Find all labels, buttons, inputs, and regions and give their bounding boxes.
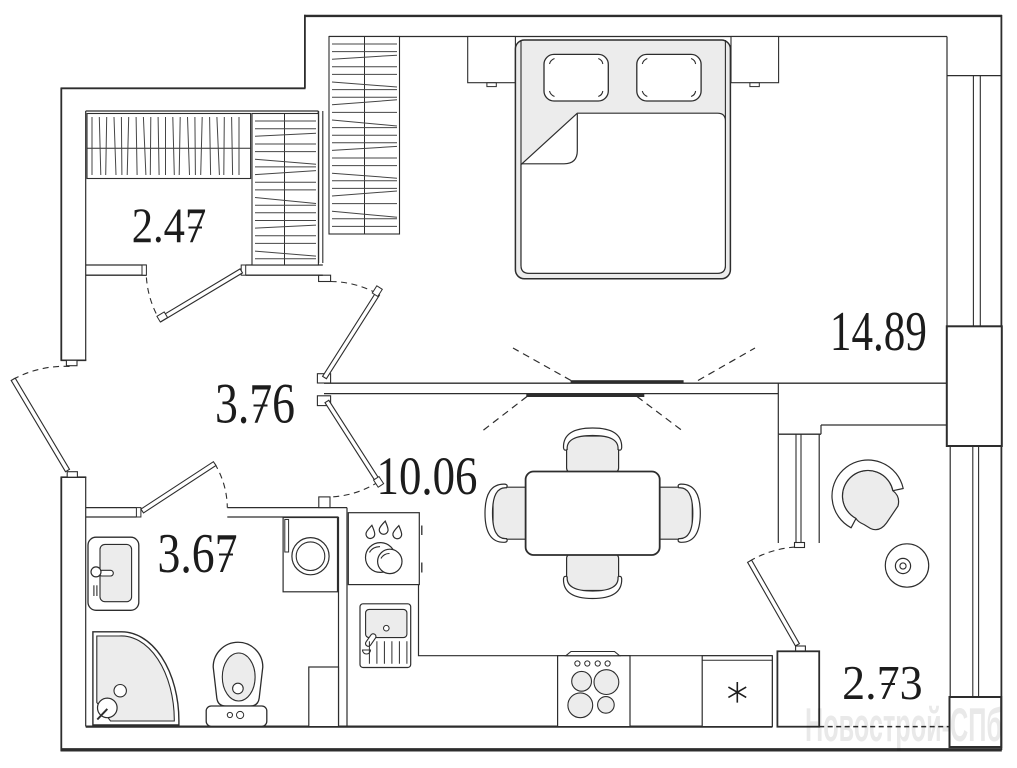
svg-text:3.76: 3.76 [215,373,295,436]
svg-text:10.06: 10.06 [377,446,478,506]
svg-text:14.89: 14.89 [830,301,927,363]
svg-text:2.47: 2.47 [132,197,207,253]
svg-text:Новострой-СПб: Новострой-СПб [805,698,1002,751]
